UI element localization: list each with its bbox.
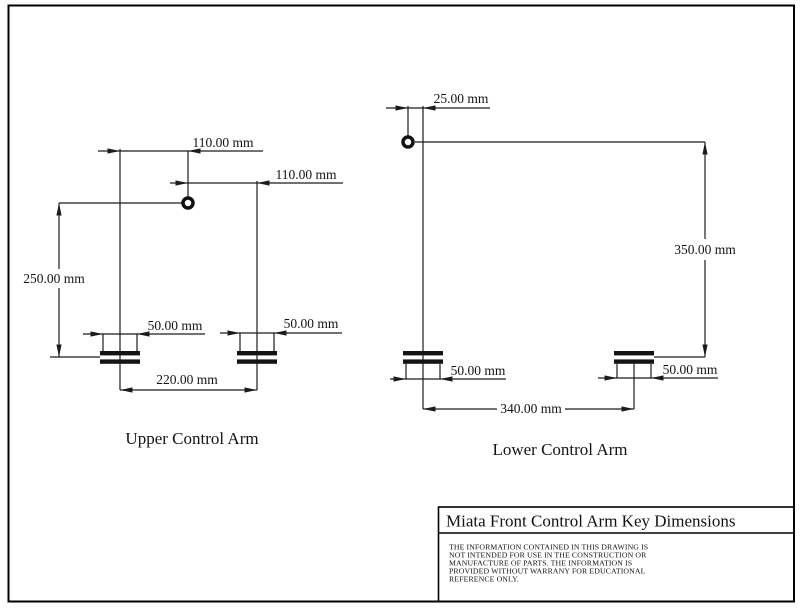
dim-label-bushing-left: 50.00 mm <box>451 363 506 378</box>
lower-arm-caption: Lower Control Arm <box>492 440 627 459</box>
bushing-bar <box>403 359 443 363</box>
dim-label-bushing-right: 50.00 mm <box>284 316 339 331</box>
disclaimer-line: REFERENCE ONLY. <box>449 575 519 584</box>
upper-arm-caption: Upper Control Arm <box>125 429 258 448</box>
bushing-bar <box>614 351 654 355</box>
dim-label-height: 350.00 mm <box>674 242 736 257</box>
dim-label-bushing-right: 50.00 mm <box>663 362 718 377</box>
bushing-bar <box>100 351 140 355</box>
bushing-bar <box>403 351 443 355</box>
dim-label-balljoint-offset: 25.00 mm <box>434 91 489 106</box>
dim-label-bushing-left: 50.00 mm <box>148 318 203 333</box>
dim-label-bushing-span: 220.00 mm <box>156 372 218 387</box>
cad-drawing-canvas: 110.00 mm 110.00 mm 250.00 mm 50.00 mm <box>0 0 800 609</box>
bushing-bar <box>100 359 140 363</box>
dim-label-height: 250.00 mm <box>23 271 85 286</box>
bushing-bar <box>237 351 277 355</box>
dim-label-pivot-right: 110.00 mm <box>275 167 336 182</box>
bushing-bar <box>237 359 277 363</box>
balljoint-circle <box>183 198 193 208</box>
dim-label-bushing-span: 340.00 mm <box>500 401 562 416</box>
drawing-title: Miata Front Control Arm Key Dimensions <box>446 512 735 531</box>
dim-label-pivot-left: 110.00 mm <box>192 135 253 150</box>
balljoint-circle <box>403 137 413 147</box>
bushing-bar <box>614 359 654 363</box>
